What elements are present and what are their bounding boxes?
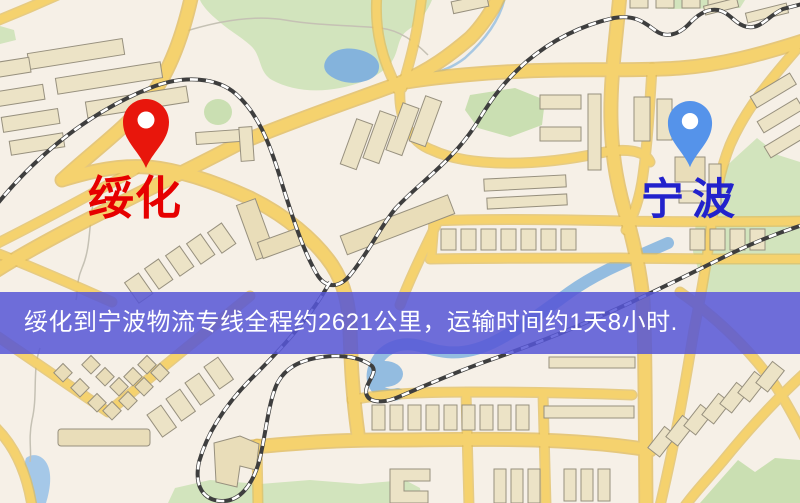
- map-image: [0, 0, 800, 503]
- route-info-text: 绥化到宁波物流专线全程约2621公里，运输时间约1天8小时.: [0, 292, 800, 354]
- route-info-banner: 绥化到宁波物流专线全程约2621公里，运输时间约1天8小时.: [0, 292, 800, 354]
- map-screenshot: 绥化 宁波 绥化到宁波物流专线全程约2621公里，运输时间约1天8小时.: [0, 0, 800, 503]
